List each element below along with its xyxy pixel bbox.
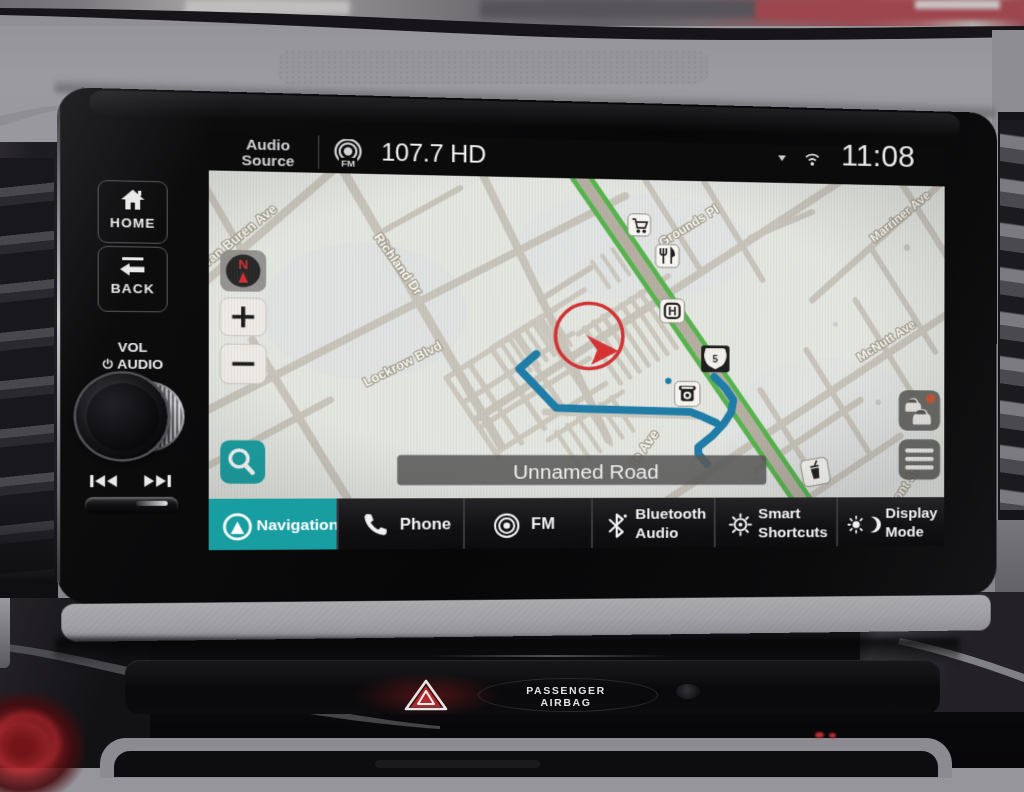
svg-text:FM: FM — [341, 160, 355, 170]
